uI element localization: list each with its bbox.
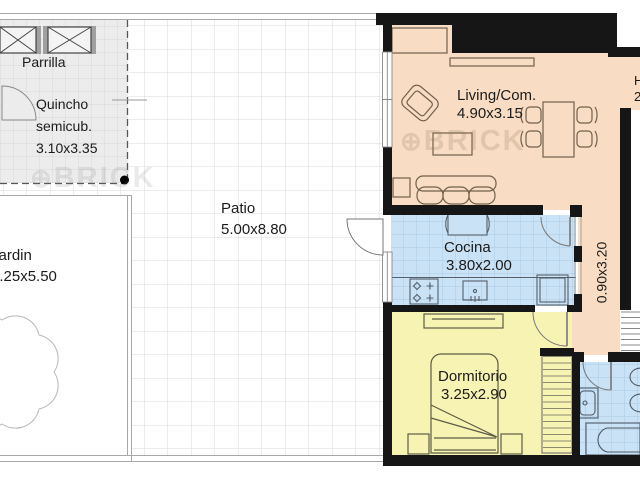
dormitorio-dims: 3.25x2.90 xyxy=(441,386,507,403)
quincho-dims: 3.10x3.35 xyxy=(36,140,98,157)
cocina-label: Cocina xyxy=(444,239,491,256)
floor-plan-drawing xyxy=(0,0,640,480)
floor-plan: ⊕BRICK ⊕BRICK Parrilla Quincho semicub. … xyxy=(0,0,640,480)
stairs-icon xyxy=(620,308,640,354)
quincho-label2: semicub. xyxy=(36,118,92,135)
jardin-label: Jardin xyxy=(0,247,32,264)
brand-watermark: ⊕BRICK xyxy=(400,125,526,158)
kitchen-table-icon xyxy=(446,212,490,235)
living-dims: 4.90x3.15 xyxy=(457,105,523,122)
patio-dims: 5.00x8.80 xyxy=(221,221,287,238)
cabinet-icon xyxy=(392,28,447,53)
kitchen-window xyxy=(383,252,393,302)
brand-watermark: ⊕BRICK xyxy=(30,162,156,195)
closet-icon xyxy=(542,355,572,453)
brand-logo-icon: ⊕ xyxy=(400,126,424,156)
living-window xyxy=(383,52,393,147)
cocina-dims: 3.80x2.00 xyxy=(446,257,512,274)
corridor-dims: 0.90x3.20 xyxy=(594,233,611,313)
brand-logo-icon: ⊕ xyxy=(30,163,54,193)
hall-dims: 2 xyxy=(634,88,640,105)
grill-counter-icon xyxy=(0,26,96,54)
living-label: Living/Com. xyxy=(457,87,536,104)
bathroom-floor xyxy=(578,362,640,455)
hall-label: H xyxy=(634,72,640,89)
dormitorio-label: Dormitorio xyxy=(438,368,507,385)
parrilla-label: Parrilla xyxy=(22,54,66,71)
quincho-label: Quincho xyxy=(36,96,88,113)
patio-label: Patio xyxy=(221,200,255,217)
jardin-dims: 3.25x5.50 xyxy=(0,268,57,285)
